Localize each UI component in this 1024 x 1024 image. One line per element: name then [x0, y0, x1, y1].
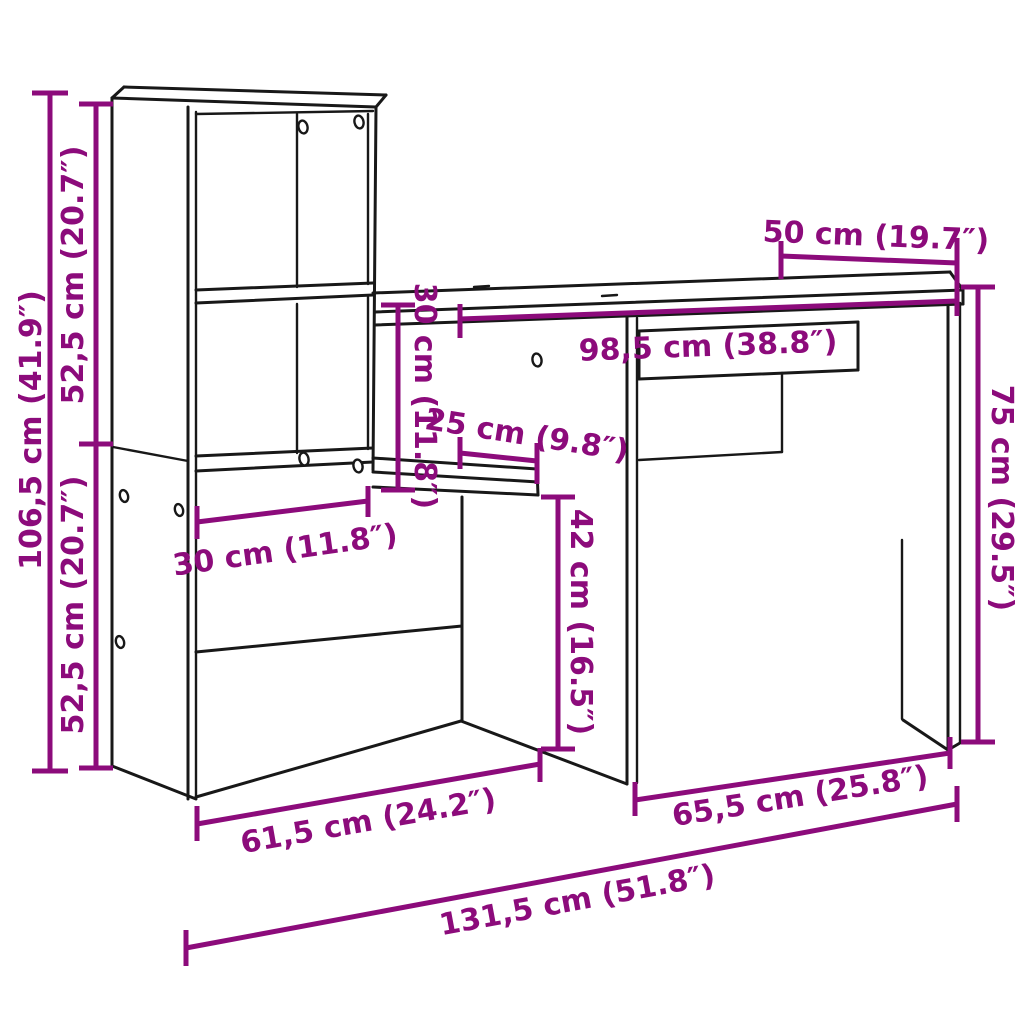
diagram-canvas: 106,5 cm (41.9″) 52,5 cm (20.7″) 52,5 cm… [0, 0, 1024, 1024]
label-desktop-width: 98,5 cm (38.8″) [578, 324, 838, 368]
label-top-section-height: 52,5 cm (20.7″) [56, 146, 91, 405]
middle-leg [461, 317, 637, 784]
label-shelf-opening: 30 cm (11.8″) [407, 283, 442, 510]
furniture-dimension-diagram: 106,5 cm (41.9″) 52,5 cm (20.7″) 52,5 cm… [0, 0, 1024, 1024]
dim-total-width [186, 786, 957, 966]
label-underdesk-clearance: 42 cm (16.5″) [563, 509, 598, 736]
label-total-width: 131,5 cm (51.8″) [437, 858, 718, 943]
tower-left-panel [112, 98, 196, 799]
label-right-floor-width: 65,5 cm (25.8″) [670, 759, 931, 834]
label-desk-depth: 50 cm (19.7″) [762, 214, 990, 258]
label-desk-height: 75 cm (29.5″) [984, 385, 1019, 612]
right-panel [902, 303, 960, 750]
label-bottom-section-height: 52,5 cm (20.7″) [56, 476, 91, 735]
label-total-height: 106,5 cm (41.9″) [14, 290, 49, 570]
tower-top [112, 87, 386, 107]
label-shelf-width: 30 cm (11.8″) [171, 517, 400, 583]
dimension-labels: 106,5 cm (41.9″) 52,5 cm (20.7″) 52,5 cm… [14, 146, 1019, 944]
